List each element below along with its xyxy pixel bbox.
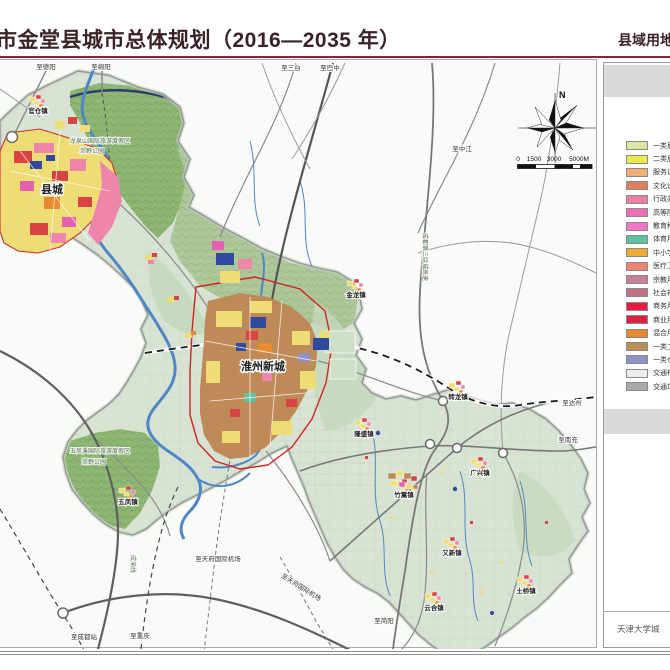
legend-label: 商务用 — [653, 301, 670, 311]
legend-item: 商业用 — [626, 313, 670, 326]
legend-item: 体育用 — [626, 233, 670, 246]
scale-bar: 0150030005000M — [516, 156, 592, 169]
map-label: 1500 — [527, 156, 542, 163]
legend-item: 社会福 — [626, 286, 670, 299]
map-label: 隆盛镇 — [354, 429, 374, 438]
legend-label: 高等院 — [653, 208, 670, 218]
map-label: 五凤溪国际旅游度假区 — [70, 447, 130, 455]
legend-item: 混合用 — [626, 326, 670, 339]
map-label: 至成都站 — [71, 632, 98, 641]
legend-item: 二类居 — [626, 152, 670, 165]
legend-label: 医疗卫 — [653, 261, 670, 271]
map-canvas: 官仓镇金龙镇转龙镇隆盛镇竹篙镇广兴镇又新镇云合镇土桥镇五凤镇 县城淮州新城至德阳… — [0, 59, 597, 648]
legend-label: 宗教用 — [653, 275, 670, 285]
map-label: 成渝线 — [129, 555, 137, 573]
legend-item: 一类工 — [626, 340, 670, 353]
legend-swatch — [626, 288, 648, 297]
map-label: 龙泉山国际旅游度假区 — [70, 137, 130, 145]
legend-header-band — [604, 65, 670, 97]
legend-item: 服务设 — [626, 166, 670, 179]
map-label: 至重庆 — [130, 631, 150, 640]
bottom-rule-1 — [0, 651, 670, 652]
legend-swatch — [626, 141, 648, 150]
map-label: 至天府国际机场 — [280, 571, 324, 603]
header-accent-rule — [0, 56, 670, 58]
legend-list: 一类居二类居服务设文化设行政办高等院教育科体育用中小学医疗卫宗教用社会福商务用商… — [626, 139, 670, 393]
map-label: 云合镇 — [424, 603, 444, 612]
legend-swatch — [626, 315, 648, 324]
compass-rose-icon: N — [518, 90, 596, 163]
map-label: 至三台 — [281, 63, 301, 72]
legend-label: 二类居 — [653, 154, 670, 164]
legend-label: 混合用 — [653, 328, 670, 338]
panel-footer: 天津大学城 — [604, 611, 670, 648]
legend-label: 服务设 — [653, 167, 670, 177]
legend-item: 交通枢 — [626, 367, 670, 380]
legend-panel: 一类居二类居服务设文化设行政办高等院教育科体育用中小学医疗卫宗教用社会福商务用商… — [603, 62, 670, 648]
legend-swatch — [626, 235, 648, 244]
legend-item: 行政办 — [626, 193, 670, 206]
legend-item: 中小学 — [626, 246, 670, 259]
map-label: 成都第三绕城高速 — [421, 233, 429, 281]
map-label: 0 — [516, 156, 520, 163]
legend-label: 文化设 — [653, 181, 670, 191]
legend-item: 宗教用 — [626, 273, 670, 286]
map-label: 郊野公园 — [82, 458, 106, 466]
map-label: 土桥镇 — [516, 586, 536, 595]
legend-swatch — [626, 248, 648, 257]
map-label: 县城 — [41, 182, 63, 196]
compass-north-label: N — [559, 90, 566, 100]
legend-item: 交通场 — [626, 380, 670, 393]
legend-swatch — [626, 382, 648, 391]
legend-swatch — [626, 329, 648, 338]
map-label: 五凤镇 — [118, 497, 138, 506]
map-label: 5000M — [569, 156, 589, 163]
legend-label: 交通枢 — [653, 368, 670, 378]
legend-swatch — [626, 302, 648, 311]
legend-label: 中小学 — [653, 248, 670, 258]
map-label: 至南充 — [558, 435, 578, 444]
legend-label: 教育科 — [653, 221, 670, 231]
legend-label: 社会福 — [653, 288, 670, 298]
legend-swatch — [626, 155, 648, 164]
map-label: 又新镇 — [442, 548, 462, 557]
map-label: 转龙镇 — [448, 392, 468, 401]
legend-item: 一类仓 — [626, 353, 670, 366]
page-title: 市金堂县城市总体规划（2016—2035 年） — [0, 24, 401, 54]
map-label: 至天府国际机场 — [195, 554, 241, 563]
legend-label: 商业用 — [653, 315, 670, 325]
legend-label: 体育用 — [653, 234, 670, 244]
map-label: 至德阳 — [36, 62, 56, 71]
bottom-rule-2 — [0, 654, 670, 655]
legend-item: 高等院 — [626, 206, 670, 219]
legend-swatch — [626, 355, 648, 364]
legend-label: 一类居 — [653, 141, 670, 151]
page-header: 市金堂县城市总体规划（2016—2035 年） 县域用地 — [0, 0, 670, 56]
legend-swatch — [626, 181, 648, 190]
map-label: 淮州新城 — [241, 359, 285, 373]
legend-swatch — [626, 168, 648, 177]
map-label: 广兴镇 — [470, 468, 490, 477]
institute-credit: 天津大学城 — [617, 623, 660, 635]
sheet-title: 县域用地 — [618, 30, 670, 50]
legend-swatch — [626, 222, 648, 231]
map-label: 竹篙镇 — [393, 490, 414, 499]
legend-label: 一类仓 — [653, 355, 670, 365]
legend-item: 医疗卫 — [626, 260, 670, 273]
legend-item: 教育科 — [626, 219, 670, 232]
map-label: 官仓镇 — [28, 106, 48, 115]
legend-item: 一类居 — [626, 139, 670, 152]
legend-section-band — [604, 409, 670, 434]
county-map-svg: 官仓镇金龙镇转龙镇隆盛镇竹篙镇广兴镇又新镇云合镇土桥镇五凤镇 县城淮州新城至德阳… — [0, 60, 597, 649]
map-label: 至达州 — [562, 398, 582, 407]
map-label: 至简阳 — [374, 616, 394, 625]
legend-label: 交通场 — [653, 382, 670, 392]
map-label: 至绵阳 — [91, 62, 111, 71]
legend-swatch — [626, 369, 648, 378]
legend-swatch — [626, 208, 648, 217]
map-label: 至中江 — [452, 144, 472, 153]
map-label: 郊野公园 — [80, 147, 104, 155]
map-label: 3000 — [547, 156, 562, 163]
legend-swatch — [626, 262, 648, 271]
legend-item: 商务用 — [626, 300, 670, 313]
legend-item: 文化设 — [626, 179, 670, 192]
legend-swatch — [626, 195, 648, 204]
legend-swatch — [626, 342, 648, 351]
legend-label: 一类工 — [653, 342, 670, 352]
legend-label: 行政办 — [653, 194, 670, 204]
map-label: 至巴中 — [320, 63, 340, 72]
legend-swatch — [626, 275, 648, 284]
map-label: 金龙镇 — [345, 290, 366, 299]
